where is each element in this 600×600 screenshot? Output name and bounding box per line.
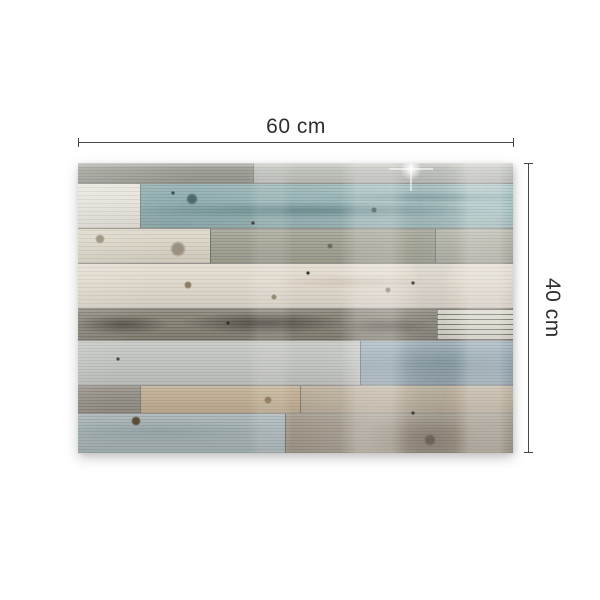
wood-plank-segment xyxy=(140,386,300,413)
wood-plank-row xyxy=(78,263,513,308)
wood-plank-segment xyxy=(78,309,437,340)
width-dimension-tick-right xyxy=(513,138,514,147)
width-dimension-label: 60 cm xyxy=(78,115,514,139)
wood-plank-rows xyxy=(78,163,513,453)
wood-plank-segment xyxy=(210,229,435,263)
wood-plank-segment xyxy=(140,184,513,228)
splashback-panel-photo xyxy=(78,163,513,453)
wood-plank-segment xyxy=(78,414,285,453)
wood-plank-segment xyxy=(300,386,513,413)
wood-plank-row xyxy=(78,183,513,228)
wood-plank-row xyxy=(78,385,513,413)
product-dimension-image: 60 cm 40 cm xyxy=(0,0,600,600)
wood-plank-row xyxy=(78,228,513,263)
wood-plank-segment xyxy=(78,386,140,413)
height-dimension-tick-bottom xyxy=(524,452,533,453)
wood-plank-row xyxy=(78,163,513,183)
wood-plank-segment xyxy=(78,163,253,183)
wood-plank-row xyxy=(78,308,513,340)
wood-plank-segment xyxy=(435,229,513,263)
width-dimension-line xyxy=(78,142,514,143)
wood-plank-segment xyxy=(78,184,140,228)
wood-plank-segment xyxy=(437,309,513,340)
height-dimension-label: 40 cm xyxy=(539,163,565,453)
wood-plank-row xyxy=(78,340,513,385)
wood-plank-row xyxy=(78,413,513,453)
width-dimension-tick-left xyxy=(78,138,79,147)
height-dimension-line xyxy=(528,163,529,453)
wood-plank-segment xyxy=(285,414,513,453)
wood-plank-segment xyxy=(253,163,513,183)
wood-plank-segment xyxy=(78,229,210,263)
height-dimension-tick-top xyxy=(524,163,533,164)
wood-plank-segment xyxy=(360,341,513,385)
wood-plank-segment xyxy=(78,264,513,308)
wood-plank-segment xyxy=(78,341,360,385)
